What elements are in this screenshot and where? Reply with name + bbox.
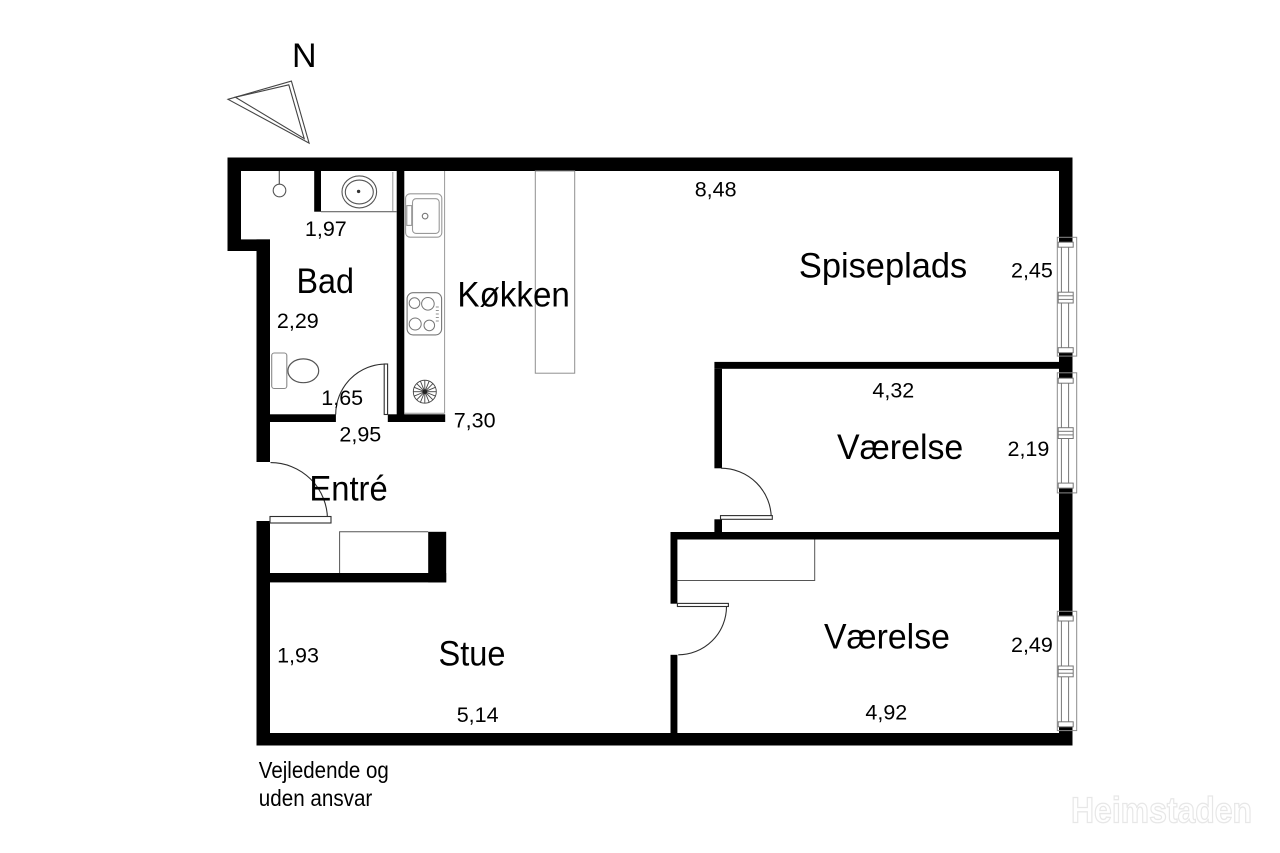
svg-text:Værelse: Værelse xyxy=(824,618,950,657)
svg-text:2,19: 2,19 xyxy=(1008,437,1050,461)
svg-text:Bad: Bad xyxy=(297,262,355,301)
svg-text:7,30: 7,30 xyxy=(454,409,496,433)
svg-text:8,48: 8,48 xyxy=(695,178,737,202)
svg-text:5,14: 5,14 xyxy=(457,703,499,727)
svg-text:Stue: Stue xyxy=(439,635,506,674)
svg-text:Entré: Entré xyxy=(309,470,387,509)
svg-text:1,65: 1,65 xyxy=(321,386,363,410)
svg-text:Værelse: Værelse xyxy=(837,428,963,467)
svg-text:Spiseplads: Spiseplads xyxy=(799,246,967,285)
svg-text:2,95: 2,95 xyxy=(339,422,381,446)
svg-text:Heimstaden: Heimstaden xyxy=(1071,790,1252,831)
svg-text:Vejledende og: Vejledende og xyxy=(259,757,389,783)
svg-text:uden ansvar: uden ansvar xyxy=(259,785,373,811)
svg-text:4,32: 4,32 xyxy=(872,379,914,403)
svg-text:2,29: 2,29 xyxy=(277,309,319,333)
svg-text:4,92: 4,92 xyxy=(865,701,907,725)
svg-text:1,97: 1,97 xyxy=(305,217,347,241)
svg-text:N: N xyxy=(292,37,317,75)
svg-text:Køkken: Køkken xyxy=(457,276,570,315)
svg-text:2,45: 2,45 xyxy=(1011,258,1053,282)
svg-text:2,49: 2,49 xyxy=(1011,633,1053,657)
svg-text:1,93: 1,93 xyxy=(277,644,319,668)
